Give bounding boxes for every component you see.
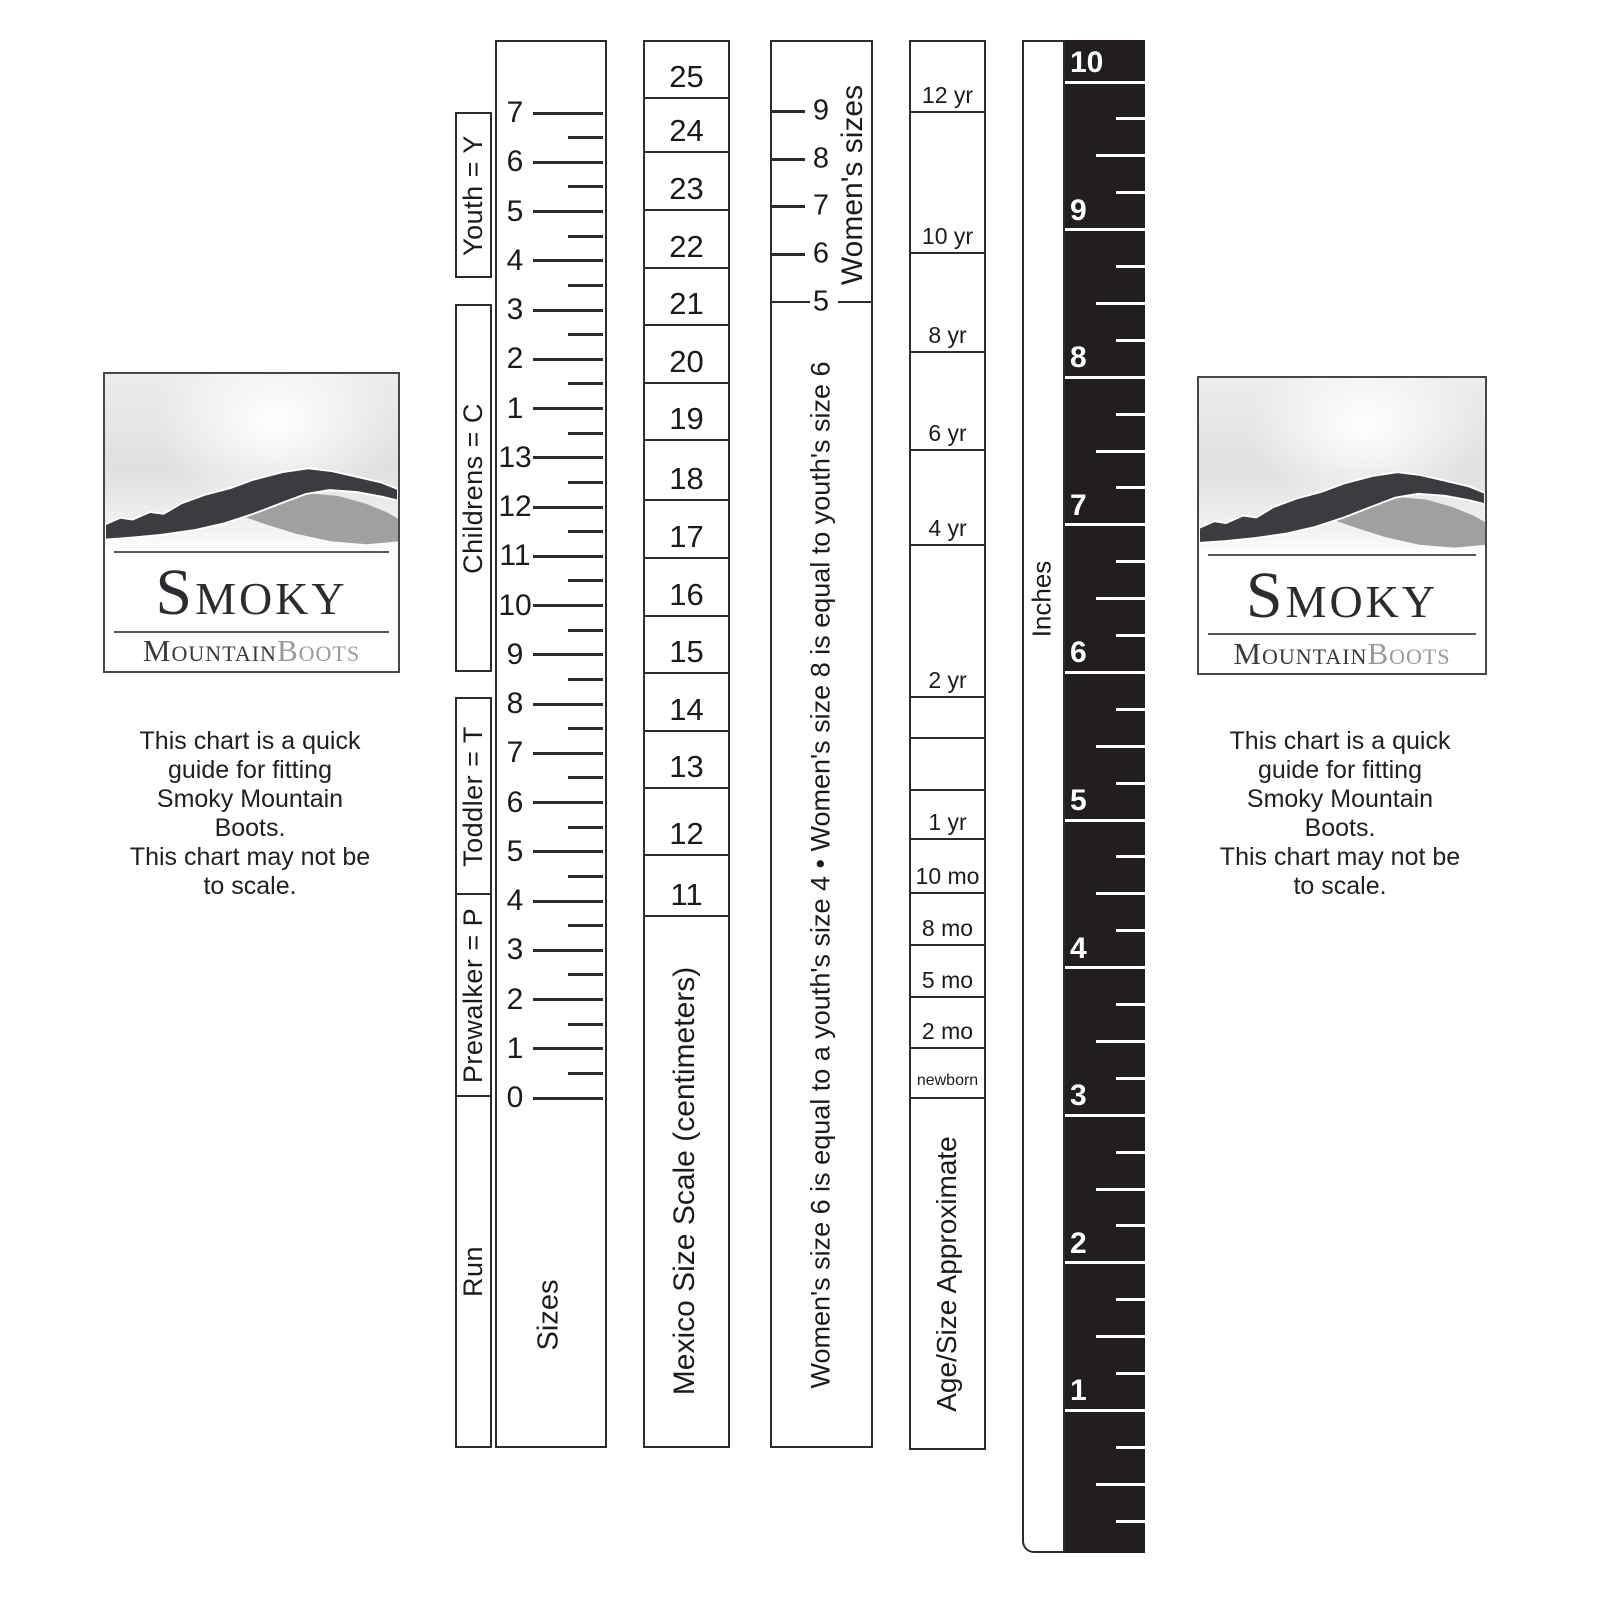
inch-quarter-tick <box>1116 413 1145 416</box>
logo-word-boots: Boots <box>1367 636 1450 671</box>
size-half-tick <box>568 235 603 238</box>
mexico-value: 24 <box>645 112 728 150</box>
mexico-divider <box>645 615 728 617</box>
size-tick <box>533 358 603 361</box>
inch-quarter-tick <box>1116 634 1145 637</box>
bracket-box: Childrens = C <box>455 304 492 672</box>
fitting-note-right: This chart is a quick guide for fitting … <box>1185 727 1495 901</box>
logo-divider <box>114 551 389 553</box>
note-line: Boots. <box>1185 814 1495 843</box>
size-label: 5 <box>497 197 533 227</box>
inch-quarter-tick <box>1096 892 1145 895</box>
inch-number: 10 <box>1070 46 1103 80</box>
mexico-divider <box>645 499 728 501</box>
size-tick <box>533 259 603 262</box>
size-half-tick <box>568 1072 603 1075</box>
mexico-value: 21 <box>645 285 728 323</box>
age-divider <box>911 737 984 739</box>
mexico-value: 11 <box>645 876 728 914</box>
mexico-divider <box>645 439 728 441</box>
mexico-divider <box>645 557 728 559</box>
age-divider <box>911 449 984 451</box>
inch-number: 2 <box>1070 1227 1087 1261</box>
inch-quarter-tick <box>1116 1224 1145 1227</box>
size-half-tick <box>568 924 603 927</box>
mountain-icon <box>105 454 398 549</box>
size-half-tick <box>568 530 603 533</box>
size-tick <box>533 309 603 312</box>
mexico-value: 12 <box>645 815 728 853</box>
inch-number: 9 <box>1070 194 1087 228</box>
note-line: This chart may not be <box>1185 843 1495 872</box>
note-line: Smoky Mountain <box>95 785 405 814</box>
logo-title: Smoky <box>105 558 398 627</box>
mexico-value: 15 <box>645 633 728 671</box>
note-line: This chart is a quick <box>95 727 405 756</box>
inch-number: 1 <box>1070 1374 1087 1408</box>
size-label: 2 <box>497 344 533 374</box>
womens-tick <box>772 253 805 256</box>
size-tick <box>533 801 603 804</box>
inch-quarter-tick <box>1116 191 1145 194</box>
age-divider <box>911 789 984 791</box>
note-line: to scale. <box>1185 872 1495 901</box>
logo-word-mountain: Mountain <box>1233 636 1367 671</box>
inch-number: 3 <box>1070 1079 1087 1113</box>
bracket-label: Toddler = T <box>458 726 489 867</box>
size-half-tick <box>568 826 603 829</box>
note-line: Boots. <box>95 814 405 843</box>
inch-line <box>1065 966 1145 969</box>
size-label: 4 <box>497 886 533 916</box>
size-chart: Smoky MountainBoots This chart is a quic… <box>0 0 1600 1600</box>
age-divider <box>911 111 984 113</box>
size-tick <box>533 407 603 410</box>
age-cell-label: 8 yr <box>911 320 984 350</box>
inch-quarter-tick <box>1096 1483 1145 1486</box>
womens-size-label: 5 <box>806 288 836 317</box>
logo-left: Smoky MountainBoots <box>103 372 400 673</box>
age-cell-label: 5 mo <box>911 965 984 995</box>
mexico-divider <box>645 672 728 674</box>
age-divider <box>911 1047 984 1049</box>
size-label: 1 <box>497 394 533 424</box>
inch-quarter-tick <box>1096 745 1145 748</box>
inch-quarter-tick <box>1116 929 1145 932</box>
mexico-divider <box>645 382 728 384</box>
inch-quarter-tick <box>1116 1372 1145 1375</box>
mexico-divider <box>645 151 728 153</box>
inch-number: 5 <box>1070 784 1087 818</box>
size-label: 7 <box>497 98 533 128</box>
womens-divider-right <box>838 301 871 303</box>
inch-quarter-tick <box>1116 1003 1145 1006</box>
size-label: 0 <box>497 1083 533 1113</box>
size-tick <box>533 210 603 213</box>
inch-quarter-tick <box>1116 339 1145 342</box>
age-cell-label: 1 yr <box>911 807 984 837</box>
mexico-value: 18 <box>645 460 728 498</box>
age-divider <box>911 996 984 998</box>
age-divider <box>911 351 984 353</box>
inch-number: 8 <box>1070 341 1087 375</box>
inch-quarter-tick <box>1116 560 1145 563</box>
inch-line <box>1065 1114 1145 1117</box>
age-divider <box>911 252 984 254</box>
womens-size-label: 7 <box>806 192 836 221</box>
size-tick <box>533 850 603 853</box>
inch-quarter-tick <box>1096 597 1145 600</box>
inch-line <box>1065 671 1145 674</box>
inch-number: 4 <box>1070 932 1087 966</box>
size-label: 12 <box>497 492 533 522</box>
inch-quarter-tick <box>1096 450 1145 453</box>
mexico-value: 22 <box>645 228 728 266</box>
inch-quarter-tick <box>1116 265 1145 268</box>
logo-title: Smoky <box>1199 561 1485 630</box>
mountain-icon <box>1199 458 1485 552</box>
size-label: 7 <box>497 738 533 768</box>
size-half-tick <box>568 727 603 730</box>
mexico-divider <box>645 787 728 789</box>
mexico-divider <box>645 97 728 99</box>
inch-line <box>1065 81 1145 84</box>
bracket-label: Childrens = C <box>458 403 489 574</box>
size-half-tick <box>568 136 603 139</box>
size-half-tick <box>568 481 603 484</box>
mexico-value: 23 <box>645 170 728 208</box>
bracket-box: Youth = Y <box>455 112 492 278</box>
bracket-label: Prewalker = P <box>458 907 489 1082</box>
age-cell-label: 10 yr <box>911 221 984 251</box>
size-tick <box>533 998 603 1001</box>
inch-quarter-tick <box>1096 1040 1145 1043</box>
age-divider <box>911 1097 984 1099</box>
age-cell-label: 4 yr <box>911 513 984 543</box>
size-label: 8 <box>497 689 533 719</box>
age-cell-label: 12 yr <box>911 80 984 110</box>
size-half-tick <box>568 629 603 632</box>
inch-quarter-tick <box>1096 302 1145 305</box>
age-cell-label: 10 mo <box>911 861 984 891</box>
size-label: 13 <box>497 443 533 473</box>
inch-quarter-tick <box>1096 1188 1145 1191</box>
mexico-value: 16 <box>645 576 728 614</box>
mexico-value: 17 <box>645 518 728 556</box>
womens-size-label: 8 <box>806 145 836 174</box>
size-label: 4 <box>497 246 533 276</box>
note-line: guide for fitting <box>1185 756 1495 785</box>
size-half-tick <box>568 973 603 976</box>
fitting-note-left: This chart is a quick guide for fitting … <box>95 727 405 901</box>
logo-right: Smoky MountainBoots <box>1197 376 1487 675</box>
age-cell-label: 2 yr <box>911 665 984 695</box>
size-tick <box>533 161 603 164</box>
inch-quarter-tick <box>1116 486 1145 489</box>
logo-word-boots: Boots <box>277 633 360 668</box>
age-cell-label: 2 mo <box>911 1016 984 1046</box>
size-half-tick <box>568 333 603 336</box>
size-label: 6 <box>497 147 533 177</box>
size-tick <box>533 900 603 903</box>
mexico-divider <box>645 730 728 732</box>
size-label: 1 <box>497 1034 533 1064</box>
womens-column: Women's sizes Women's size 6 is equal to… <box>770 40 873 1448</box>
size-label: 3 <box>497 935 533 965</box>
logo-divider <box>1208 554 1477 556</box>
womens-size-label: 6 <box>806 240 836 269</box>
size-half-tick <box>568 1023 603 1026</box>
size-tick <box>533 1097 603 1100</box>
inch-quarter-tick <box>1116 1151 1145 1154</box>
size-half-tick <box>568 776 603 779</box>
age-cell-label: 8 mo <box>911 913 984 943</box>
inch-quarter-tick <box>1116 855 1145 858</box>
size-label: 11 <box>497 541 533 571</box>
size-label: 5 <box>497 837 533 867</box>
size-half-tick <box>568 382 603 385</box>
womens-size-label: 9 <box>806 97 836 126</box>
inch-quarter-tick <box>1116 708 1145 711</box>
bracket-label: Youth = Y <box>458 135 489 256</box>
age-column-title: Age/Size Approximate <box>931 1136 963 1412</box>
inches-label-strip: Inches <box>1022 40 1065 1553</box>
inches-title: Inches <box>1027 561 1058 638</box>
inch-line <box>1065 376 1145 379</box>
size-half-tick <box>568 185 603 188</box>
size-half-tick <box>568 875 603 878</box>
inch-number: 6 <box>1070 636 1087 670</box>
size-label: 9 <box>497 640 533 670</box>
size-half-tick <box>568 678 603 681</box>
size-label: 10 <box>497 591 533 621</box>
note-line: This chart is a quick <box>1185 727 1495 756</box>
womens-tick <box>772 110 805 113</box>
inch-quarter-tick <box>1116 782 1145 785</box>
age-column: Age/Size Approximate 12 yr10 yr8 yr6 yr4… <box>909 40 986 1450</box>
inch-line <box>1065 1409 1145 1412</box>
logo-word-mountain: Mountain <box>143 633 277 668</box>
size-tick <box>533 1047 603 1050</box>
age-divider <box>911 838 984 840</box>
mexico-divider <box>645 267 728 269</box>
size-tick <box>533 752 603 755</box>
sizes-column: Sizes 7654321131211109876543210 <box>495 40 607 1448</box>
womens-tick <box>772 158 805 161</box>
inch-line <box>1065 1261 1145 1264</box>
age-cell-label: newborn <box>911 1066 984 1096</box>
size-half-tick <box>568 284 603 287</box>
size-tick <box>533 703 603 706</box>
mexico-divider <box>645 915 728 917</box>
womens-conversion-note: Women's size 6 is equal to a youth's siz… <box>806 361 837 1388</box>
size-tick <box>533 949 603 952</box>
inch-quarter-tick <box>1116 1298 1145 1301</box>
mexico-value: 13 <box>645 748 728 786</box>
size-tick <box>533 604 603 607</box>
mexico-value: 25 <box>645 58 728 96</box>
size-tick <box>533 112 603 115</box>
mexico-value: 20 <box>645 343 728 381</box>
note-line: to scale. <box>95 872 405 901</box>
womens-divider-left <box>772 301 810 303</box>
note-line: guide for fitting <box>95 756 405 785</box>
age-divider <box>911 892 984 894</box>
bracket-label: Run <box>458 1246 489 1297</box>
inch-quarter-tick <box>1116 1077 1145 1080</box>
size-half-tick <box>568 579 603 582</box>
age-cell-label: 6 yr <box>911 418 984 448</box>
mexico-column-title: Mexico Size Scale (centimeters) <box>668 967 702 1395</box>
age-divider <box>911 544 984 546</box>
bracket-box: Run <box>455 1095 492 1448</box>
age-divider <box>911 944 984 946</box>
mexico-column: Mexico Size Scale (centimeters) 25242322… <box>643 40 730 1448</box>
mexico-divider <box>645 324 728 326</box>
size-tick <box>533 456 603 459</box>
mexico-value: 14 <box>645 691 728 729</box>
inch-quarter-tick <box>1096 1335 1145 1338</box>
inches-ruler: 10987654321 <box>1065 40 1145 1553</box>
inch-quarter-tick <box>1116 117 1145 120</box>
mexico-divider <box>645 209 728 211</box>
inch-quarter-tick <box>1096 154 1145 157</box>
size-tick <box>533 506 603 509</box>
size-tick <box>533 555 603 558</box>
size-tick <box>533 653 603 656</box>
bracket-box: Toddler = T <box>455 697 492 895</box>
inch-quarter-tick <box>1116 1446 1145 1449</box>
sizes-column-title: Sizes <box>533 1280 566 1351</box>
mexico-value: 19 <box>645 400 728 438</box>
mexico-divider <box>645 854 728 856</box>
inch-line <box>1065 819 1145 822</box>
inch-line <box>1065 228 1145 231</box>
size-label: 3 <box>497 295 533 325</box>
logo-subtitle: MountainBoots <box>105 635 398 666</box>
womens-column-heading: Women's sizes <box>836 85 870 285</box>
size-label: 6 <box>497 788 533 818</box>
womens-tick <box>772 205 805 208</box>
size-half-tick <box>568 432 603 435</box>
logo-subtitle: MountainBoots <box>1199 638 1485 669</box>
size-label: 2 <box>497 985 533 1015</box>
inch-line <box>1065 523 1145 526</box>
note-line: This chart may not be <box>95 843 405 872</box>
note-line: Smoky Mountain <box>1185 785 1495 814</box>
age-divider <box>911 696 984 698</box>
bracket-box: Prewalker = P <box>455 893 492 1097</box>
inch-quarter-tick <box>1116 1520 1145 1523</box>
inch-number: 7 <box>1070 489 1087 523</box>
